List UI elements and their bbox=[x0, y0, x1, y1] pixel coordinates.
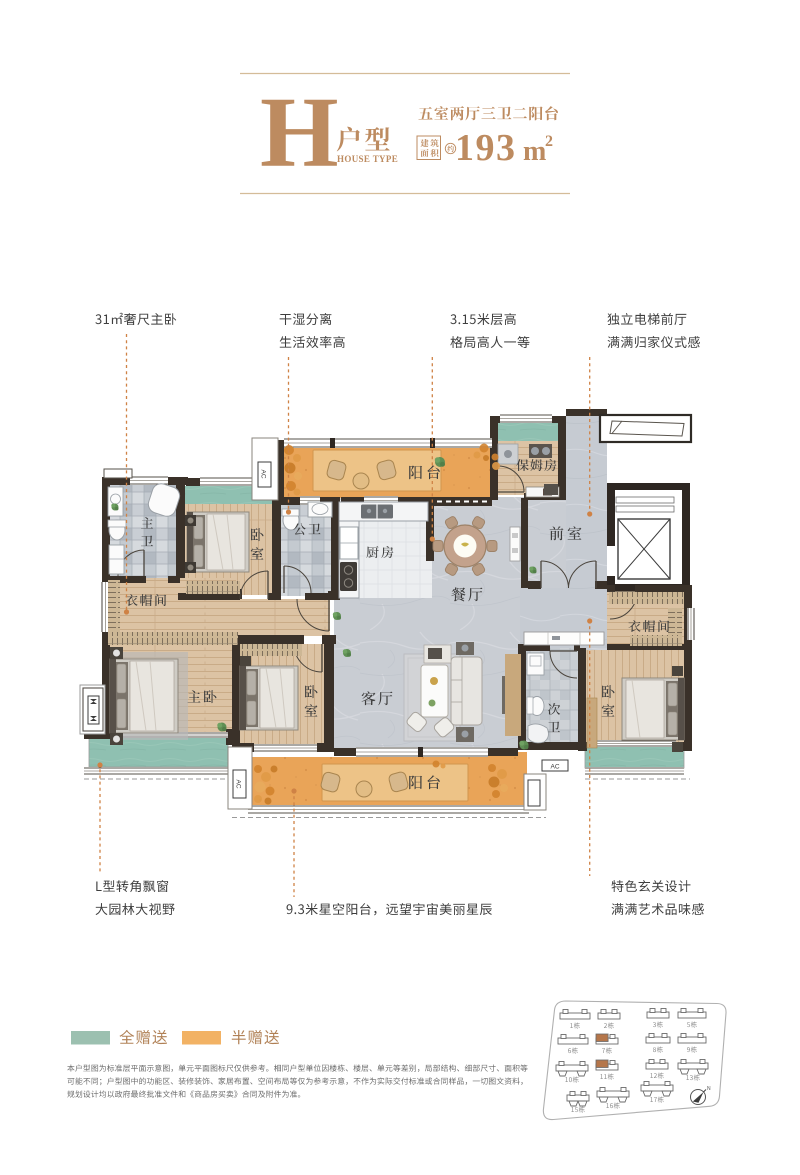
svg-text:2: 2 bbox=[545, 133, 553, 150]
svg-text:AC: AC bbox=[550, 764, 559, 771]
svg-text:N: N bbox=[707, 1086, 711, 1092]
svg-text:AC: AC bbox=[235, 779, 242, 788]
svg-text:m: m bbox=[523, 136, 546, 167]
svg-text:HOUSE TYPE: HOUSE TYPE bbox=[337, 154, 398, 164]
svg-text:AC: AC bbox=[260, 469, 267, 478]
svg-text:193: 193 bbox=[455, 127, 517, 169]
svg-text:H: H bbox=[260, 76, 339, 188]
